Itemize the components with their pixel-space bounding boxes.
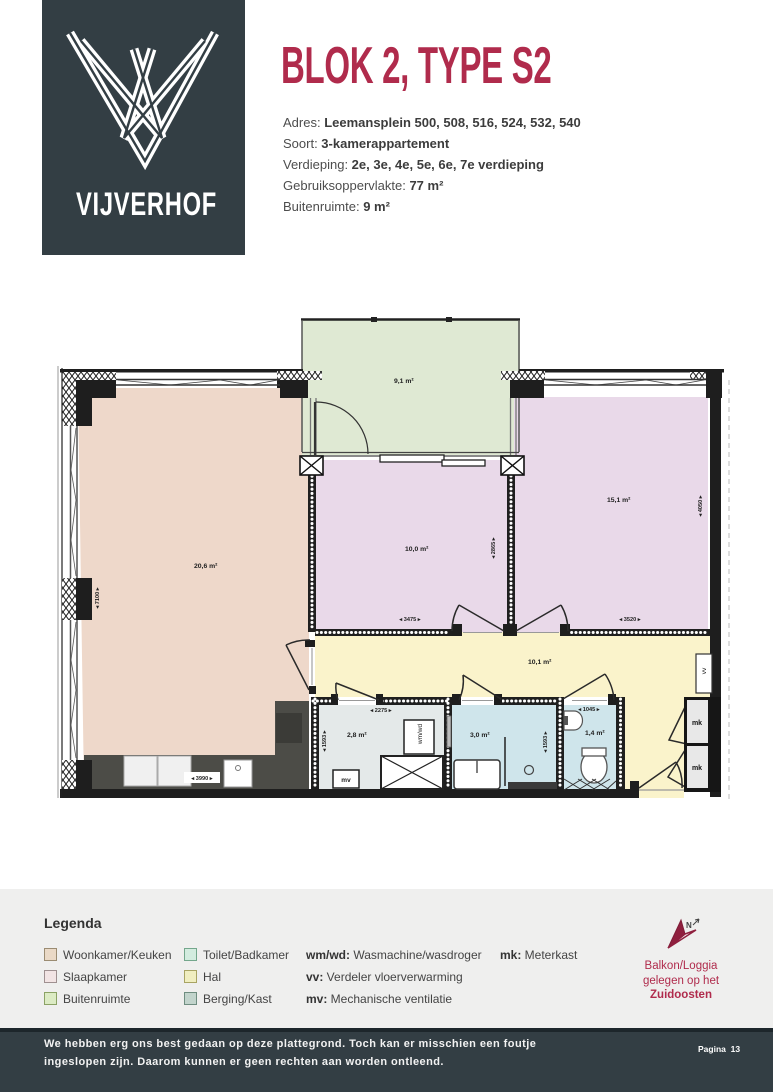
svg-text:3,0 m²: 3,0 m² — [470, 732, 490, 739]
svg-text:15,1 m²: 15,1 m² — [607, 497, 631, 504]
svg-text:◂ 3520 ▸: ◂ 3520 ▸ — [618, 617, 641, 623]
svg-text:1,4 m²: 1,4 m² — [585, 730, 605, 737]
svg-text:◂ 4050 ▸: ◂ 4050 ▸ — [698, 494, 704, 517]
svg-text:mv: mv — [341, 777, 351, 784]
svg-text:mk: mk — [692, 765, 702, 772]
svg-text:vv: vv — [701, 667, 708, 674]
svg-text:◂ 1593 ▸: ◂ 1593 ▸ — [543, 730, 549, 753]
svg-text:◂ 3990 ▸: ◂ 3990 ▸ — [190, 776, 213, 782]
svg-text:2,8 m²: 2,8 m² — [347, 732, 367, 739]
svg-text:mk: mk — [692, 720, 702, 727]
svg-text:◂ 7100 ▸: ◂ 7100 ▸ — [95, 586, 101, 609]
svg-text:◂ 3475 ▸: ◂ 3475 ▸ — [398, 617, 421, 623]
svg-text:10,1 m²: 10,1 m² — [528, 659, 552, 666]
svg-text:◂ 2865 ▸: ◂ 2865 ▸ — [491, 536, 497, 559]
svg-text:◂ 1045 ▸: ◂ 1045 ▸ — [577, 707, 600, 713]
svg-text:wm/wd: wm/wd — [417, 724, 424, 746]
svg-text:◂ 2275 ▸: ◂ 2275 ▸ — [369, 708, 392, 714]
svg-text:10,0 m²: 10,0 m² — [405, 546, 429, 553]
svg-text:9,1 m²: 9,1 m² — [394, 378, 414, 385]
svg-text:20,6 m²: 20,6 m² — [194, 563, 218, 570]
svg-text:◂ 1593 ▸: ◂ 1593 ▸ — [322, 729, 328, 752]
svg-text:N: N — [686, 921, 692, 930]
